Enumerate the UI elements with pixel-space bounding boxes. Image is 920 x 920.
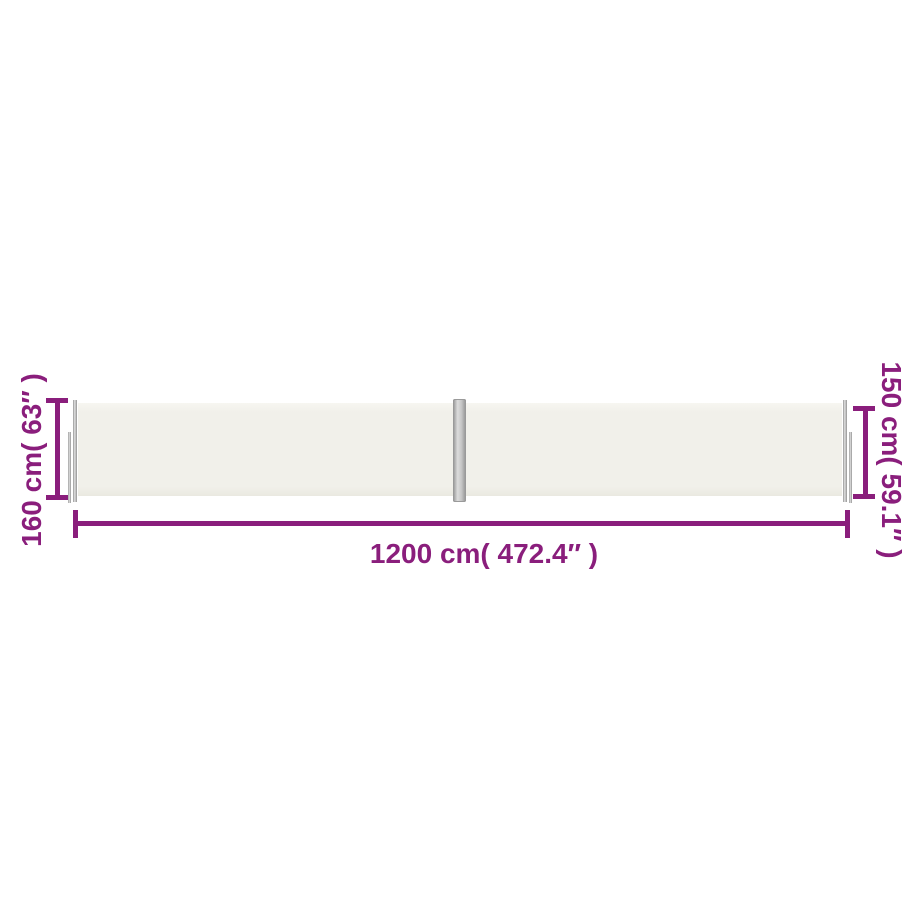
left-height-label: 160 cm( 63″ ) <box>15 360 49 560</box>
right-dimension-cap-bottom <box>853 494 875 499</box>
left-dimension-cap-top <box>46 398 68 403</box>
bottom-dimension-cap-right <box>845 510 850 538</box>
bottom-width-label: 1200 cm( 472.4″ ) <box>309 537 659 571</box>
center-pole <box>453 399 466 502</box>
awning-dimension-diagram: 160 cm( 63″ ) 150 cm( 59.1″ ) 1200 cm( 4… <box>0 0 920 920</box>
left-dimension-line <box>55 398 60 500</box>
left-post-outer <box>68 432 71 503</box>
right-height-label: 150 cm( 59.1″ ) <box>874 355 908 565</box>
right-dimension-line <box>863 406 868 499</box>
bottom-dimension-cap-left <box>73 510 78 538</box>
right-post-outer <box>849 432 852 503</box>
left-dimension-cap-bottom <box>46 495 68 500</box>
right-dimension-cap-top <box>853 406 875 411</box>
right-post-inner <box>843 400 847 502</box>
bottom-dimension-line <box>73 521 850 526</box>
left-post-inner <box>73 400 77 502</box>
